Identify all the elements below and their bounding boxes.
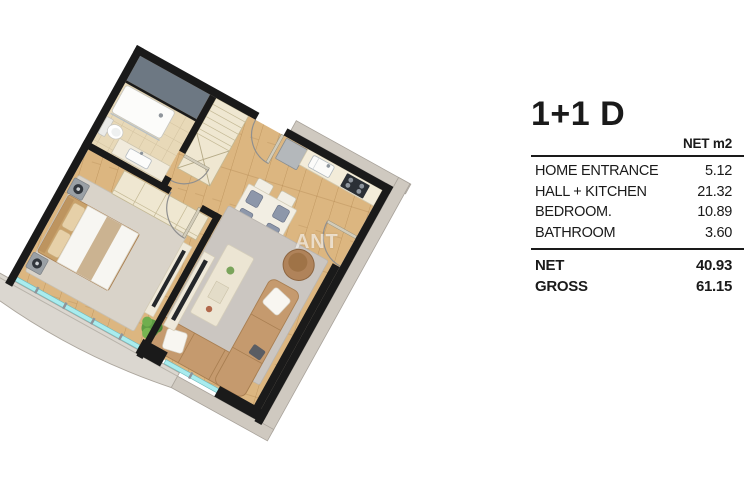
unit-header: NET m2 bbox=[531, 136, 744, 152]
room-label: BEDROOM. bbox=[535, 202, 612, 223]
table-row-gross: GROSS 61.15 bbox=[531, 276, 744, 297]
total-label: NET bbox=[535, 255, 564, 276]
total-label: GROSS bbox=[535, 276, 588, 297]
table-row: BEDROOM. 10.89 bbox=[531, 202, 744, 223]
room-label: BATHROOM bbox=[535, 223, 615, 244]
table-row: HALL + KITCHEN 21.32 bbox=[531, 182, 744, 203]
room-label: HALL + KITCHEN bbox=[535, 182, 647, 203]
room-label: HOME ENTRANCE bbox=[535, 161, 658, 182]
area-table: 1+1 D NET m2 HOME ENTRANCE 5.12 HALL + K… bbox=[531, 95, 744, 297]
plan-title: 1+1 D bbox=[531, 95, 744, 133]
table-row: BATHROOM 3.60 bbox=[531, 223, 744, 244]
table-row-net: NET 40.93 bbox=[531, 255, 744, 276]
room-area-value: 21.32 bbox=[697, 182, 732, 203]
room-area-value: 10.89 bbox=[697, 202, 732, 223]
room-area-value: 3.60 bbox=[705, 223, 732, 244]
divider bbox=[531, 155, 744, 157]
total-value: 61.15 bbox=[696, 276, 732, 297]
table-row: HOME ENTRANCE 5.12 bbox=[531, 161, 744, 182]
divider bbox=[531, 248, 744, 250]
floor-plan-rotated-group bbox=[0, 25, 411, 451]
screenshot-root: ANT 1+1 D NET m2 HOME ENTRANCE 5.12 HALL… bbox=[0, 0, 750, 500]
room-area-value: 5.12 bbox=[705, 161, 732, 182]
total-value: 40.93 bbox=[696, 255, 732, 276]
watermark: ANT bbox=[295, 231, 339, 254]
